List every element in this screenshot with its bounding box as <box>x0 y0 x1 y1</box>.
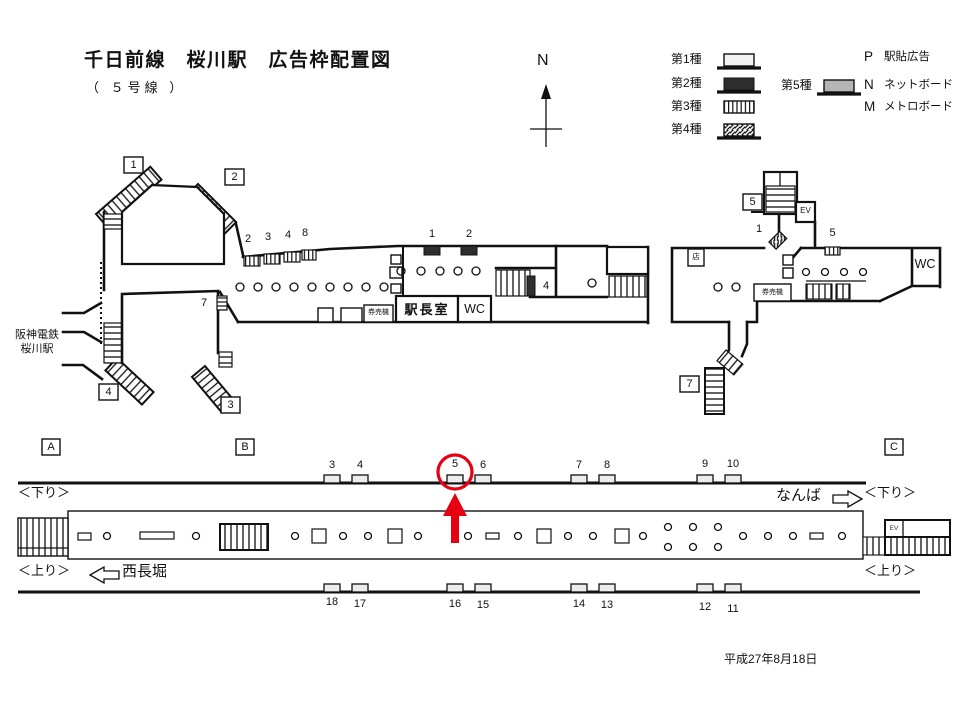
gate-box <box>391 284 401 293</box>
ad-type2-box-2 <box>461 246 477 255</box>
legend-type1-label: 第1種 <box>671 53 702 67</box>
legend-type5-label: 第5種 <box>781 79 812 93</box>
date-label: 平成27年8月18日 <box>724 653 817 667</box>
platform-ad-num-4: 4 <box>352 459 368 472</box>
platform-stairs <box>806 284 832 299</box>
platform-deck <box>68 511 863 559</box>
type2-symbol <box>724 78 754 90</box>
platform-ad-num-17: 17 <box>352 598 368 611</box>
direction-up-right: ＜上り＞ <box>864 564 916 579</box>
nishinagahori-label: 西長堀 <box>122 563 167 580</box>
platform-ad-num-9: 9 <box>697 458 713 471</box>
pillars <box>236 267 596 291</box>
north-compass <box>530 84 562 147</box>
legend-type4-label: 第4種 <box>671 123 702 137</box>
exit3-label: 3 <box>221 399 240 412</box>
platform-ev-label: EV <box>886 525 902 532</box>
booth <box>341 308 362 322</box>
ad-num-r1: 1 <box>753 223 765 236</box>
platform-west-stairs <box>18 518 68 556</box>
platform-center-stairs <box>220 524 268 550</box>
platform-ad-num-12: 12 <box>697 601 713 614</box>
ad-num-c4: 4 <box>280 229 296 242</box>
direction-up-left: ＜上り＞ <box>18 564 70 579</box>
namba-label: なんば <box>776 487 821 504</box>
gate-box <box>783 255 793 265</box>
hanshin-label-line1: 阪神電鉄 <box>6 329 68 342</box>
ad-num-m2: 2 <box>461 228 477 241</box>
ad-num-m4: 4 <box>543 280 549 293</box>
stairs <box>496 270 530 296</box>
gate-box <box>390 267 402 278</box>
hanshin-label-line2: 桜川駅 <box>6 343 68 356</box>
left-walls <box>63 212 104 379</box>
east-direction-arrow-icon <box>833 491 862 507</box>
exit7-stairs <box>705 368 724 414</box>
ticket-machine-right-label: 券売機 <box>754 289 791 297</box>
direction-down-left: ＜下り＞ <box>18 486 70 501</box>
ad-num-r5: 5 <box>825 227 840 240</box>
platform-ad-num-7: 7 <box>571 459 587 472</box>
type5-symbol <box>824 80 854 92</box>
booth <box>318 308 333 322</box>
page-subtitle: （ ５号線 ） <box>86 81 186 96</box>
station-ad-layout-map: 千日前線 桜川駅 広告枠配置図 （ ５号線 ） N 第1種 第2種 第3種 第4… <box>0 0 960 720</box>
section-a-label: A <box>42 441 60 454</box>
legend-type2-label: 第2種 <box>671 77 702 91</box>
ad-num-c7: 7 <box>198 297 210 310</box>
section-c-label: C <box>885 441 903 454</box>
legend-n-key: N <box>864 77 874 93</box>
ad-type2-box-4 <box>527 276 535 296</box>
legend-m-label: メトロボード <box>884 101 953 114</box>
ad-type3-box-2 <box>244 256 260 266</box>
ad-num-c2: 2 <box>240 233 256 246</box>
direction-down-right: ＜下り＞ <box>864 486 916 501</box>
ad-type3-box-3 <box>264 254 280 264</box>
ad-num-c8: 8 <box>297 227 313 240</box>
legend-symbols <box>717 54 861 138</box>
platform-ad-num-14: 14 <box>571 598 587 611</box>
exit1-label: 1 <box>124 159 143 172</box>
platform-ad-num-10: 10 <box>725 458 741 471</box>
ad-type3-box-4 <box>284 252 300 262</box>
map-drawing <box>0 0 960 720</box>
platform-ad-num-16: 16 <box>447 598 463 611</box>
legend-n-label: ネットボード <box>884 79 953 92</box>
concourse-left-structure <box>63 157 648 413</box>
page-title: 千日前線 桜川駅 広告枠配置図 <box>84 50 392 72</box>
ad-type3-box-7 <box>217 296 227 310</box>
type4-symbol <box>724 124 754 136</box>
wc-right-label: WC <box>910 257 940 271</box>
legend-p-label: 駅貼広告 <box>884 51 930 64</box>
platform-ad-num-11: 11 <box>725 603 741 616</box>
legend-type3-label: 第3種 <box>671 100 702 114</box>
platform-ad-num-8: 8 <box>599 459 615 472</box>
exit7-label: 7 <box>680 378 699 391</box>
tower-stairs <box>766 186 795 212</box>
exit2-label: 2 <box>225 171 244 184</box>
gate-box <box>391 255 401 264</box>
platform-east-stairs <box>863 537 950 555</box>
west-direction-arrow-icon <box>90 567 119 583</box>
platform-ad-num-6: 6 <box>475 459 491 472</box>
ticket-machine-left-label: 券売機 <box>364 309 393 317</box>
ad-type3-box-8 <box>302 250 316 260</box>
shop-label: 店 <box>688 253 704 262</box>
ad-num-m1: 1 <box>424 228 440 241</box>
platform-stairs <box>836 284 850 299</box>
small-stairs <box>104 214 122 229</box>
stationmaster-label: 駅長室 <box>397 303 457 318</box>
section-b-label: B <box>236 441 254 454</box>
ad-type2-box-1 <box>424 246 440 255</box>
wc-left-label: WC <box>458 302 491 316</box>
stairs <box>609 276 647 297</box>
legend-m-key: M <box>864 99 875 115</box>
type3-symbol <box>724 101 754 113</box>
type1-symbol <box>724 54 754 66</box>
ad-type4-box-1 <box>769 231 787 249</box>
platform-ad-num-13: 13 <box>599 599 615 612</box>
exit4-label: 4 <box>99 386 118 399</box>
platform-ad-num-15: 15 <box>475 599 491 612</box>
ad-type3-box-5 <box>825 247 840 255</box>
exit5-label: 5 <box>743 196 762 209</box>
legend-p-key: P <box>864 49 873 65</box>
gate-box <box>783 268 793 278</box>
ad-num-c3: 3 <box>260 231 276 244</box>
platform-ad-num-3: 3 <box>324 459 340 472</box>
small-stairs <box>104 323 122 363</box>
platform-ad-num-18: 18 <box>324 596 340 609</box>
platform-ad-num-5-highlighted: 5 <box>447 458 463 471</box>
compass-label: N <box>537 52 549 70</box>
notch-room <box>607 247 648 274</box>
elevator-label: EV <box>796 206 815 215</box>
small-stairs <box>219 352 232 367</box>
